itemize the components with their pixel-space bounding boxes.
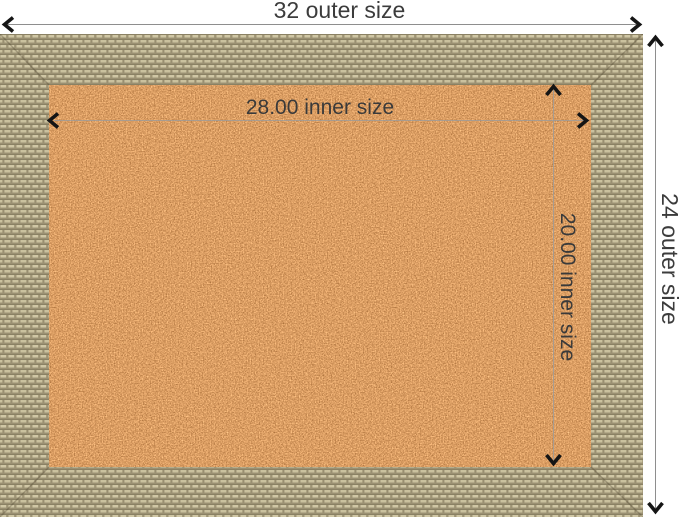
chevron-right-icon — [629, 15, 643, 34]
cork-texture — [49, 85, 591, 467]
chevron-up-icon — [646, 34, 665, 48]
chevron-left-icon — [1, 15, 15, 34]
outer-height-dimension-line — [655, 37, 656, 509]
inner-width-dimension-line — [54, 120, 584, 121]
inner-height-label: 20.00 inner size — [557, 213, 578, 361]
outer-width-dimension-line — [5, 24, 639, 25]
chevron-left-icon — [46, 111, 60, 130]
chevron-down-icon — [544, 453, 563, 467]
chevron-down-icon — [646, 501, 665, 515]
inner-height-dimension-line — [553, 90, 554, 460]
chevron-right-icon — [576, 111, 590, 130]
product-dimension-diagram: 28.00 inner size 20.00 inner size — [0, 0, 679, 517]
outer-height-label: 24 outer size — [658, 193, 679, 325]
chevron-up-icon — [544, 83, 563, 97]
cork-surface: 28.00 inner size 20.00 inner size — [49, 85, 591, 467]
outer-width-label: 32 outer size — [0, 0, 679, 22]
frame-border: 28.00 inner size 20.00 inner size — [0, 34, 643, 517]
inner-width-label: 28.00 inner size — [49, 97, 591, 118]
